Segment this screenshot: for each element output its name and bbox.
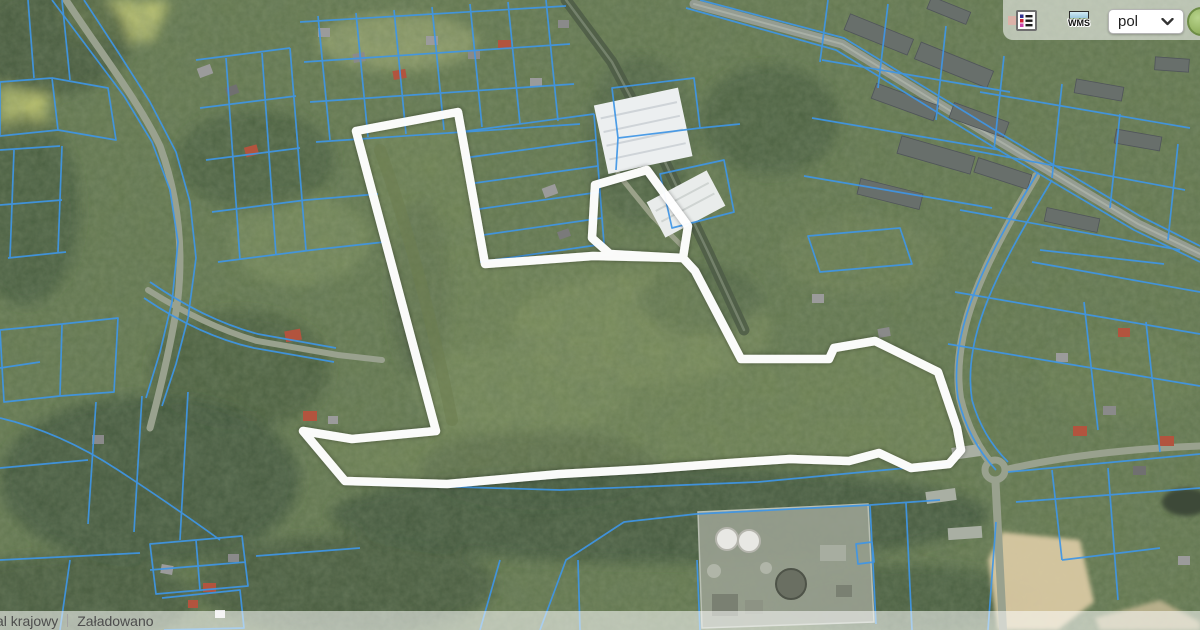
legend-icon	[1020, 14, 1033, 27]
treatment-plant	[698, 504, 874, 628]
wms-button[interactable]: WMS	[1066, 11, 1092, 35]
status-loaded: Załadowano	[77, 613, 153, 629]
status-bar: al krajowy Załadowano	[0, 611, 1200, 630]
language-value: pol	[1118, 13, 1138, 30]
legend-button[interactable]	[1016, 10, 1037, 31]
status-portal-name: al krajowy	[0, 613, 58, 629]
status-divider	[67, 614, 68, 627]
map-viewport: WMS pol al krajowy Załadowano	[0, 0, 1200, 630]
chevron-down-icon	[1161, 18, 1174, 26]
aerial-map[interactable]	[0, 0, 1200, 630]
top-toolbar: WMS pol	[1003, 0, 1200, 40]
wms-icon-label: WMS	[1068, 19, 1090, 28]
language-select[interactable]: pol	[1108, 9, 1184, 34]
